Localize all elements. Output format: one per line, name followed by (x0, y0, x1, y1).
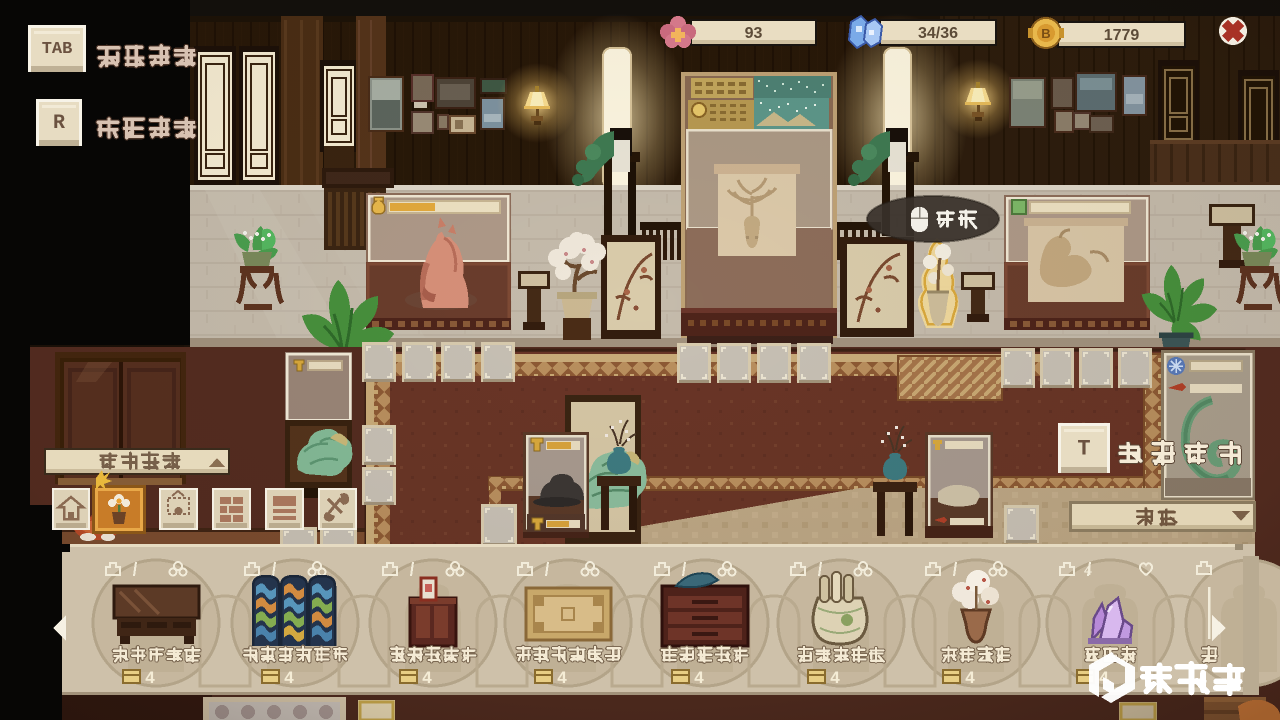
svg-text:34/36: 34/36 (918, 25, 958, 42)
svg-text:4: 4 (284, 668, 294, 687)
svg-text:93: 93 (745, 25, 763, 42)
svg-text:1779: 1779 (1104, 27, 1140, 44)
svg-text:4: 4 (694, 668, 704, 687)
svg-text:4: 4 (1084, 562, 1092, 579)
svg-text:4: 4 (145, 668, 155, 687)
svg-text:4: 4 (830, 668, 840, 687)
svg-text:4: 4 (557, 668, 567, 687)
svg-text:TAB: TAB (42, 40, 73, 59)
svg-text:4: 4 (965, 668, 975, 687)
svg-text:T: T (1077, 436, 1090, 461)
svg-text:R: R (53, 112, 65, 135)
svg-text:B: B (1041, 26, 1050, 41)
svg-text:4: 4 (422, 668, 432, 687)
